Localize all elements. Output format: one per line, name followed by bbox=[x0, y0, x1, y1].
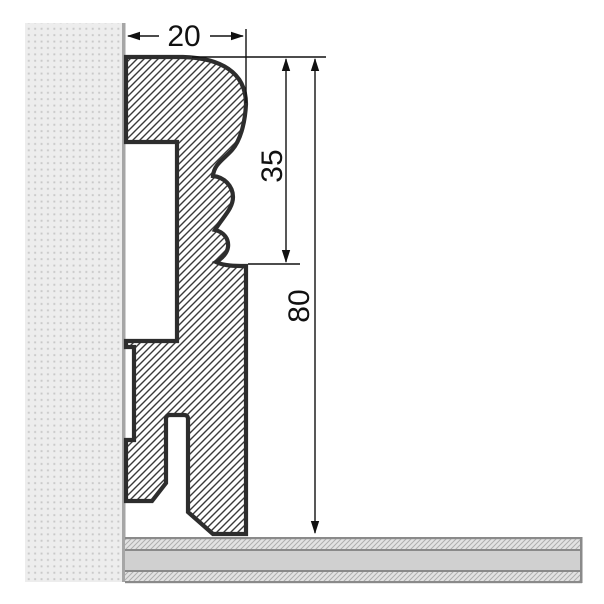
dimension-label-total-height: 80 bbox=[283, 289, 316, 322]
arrow-right-icon bbox=[231, 32, 244, 40]
floor-border-lower bbox=[125, 570, 582, 572]
dimension-label-width: 20 bbox=[167, 20, 200, 53]
arrow-down-icon bbox=[311, 521, 319, 534]
arrow-down-icon bbox=[282, 250, 290, 263]
dimension-label-upper-height: 35 bbox=[256, 149, 289, 182]
arrow-up-icon bbox=[282, 58, 290, 71]
floor-border-bottom bbox=[125, 581, 582, 583]
wall-body bbox=[25, 23, 122, 582]
floor-border-upper bbox=[125, 549, 582, 551]
arrow-left-icon bbox=[127, 32, 140, 40]
cross-section-drawing: 20 35 80 bbox=[0, 0, 604, 604]
floor-right-edge bbox=[580, 537, 583, 583]
technical-drawing-page: 20 35 80 bbox=[0, 0, 604, 604]
floor-middle-layer bbox=[125, 551, 582, 570]
floor-border-top bbox=[125, 537, 582, 539]
skirting-profile bbox=[126, 57, 246, 534]
wall bbox=[25, 23, 126, 582]
floor bbox=[125, 537, 583, 583]
arrow-up-icon bbox=[311, 58, 319, 71]
